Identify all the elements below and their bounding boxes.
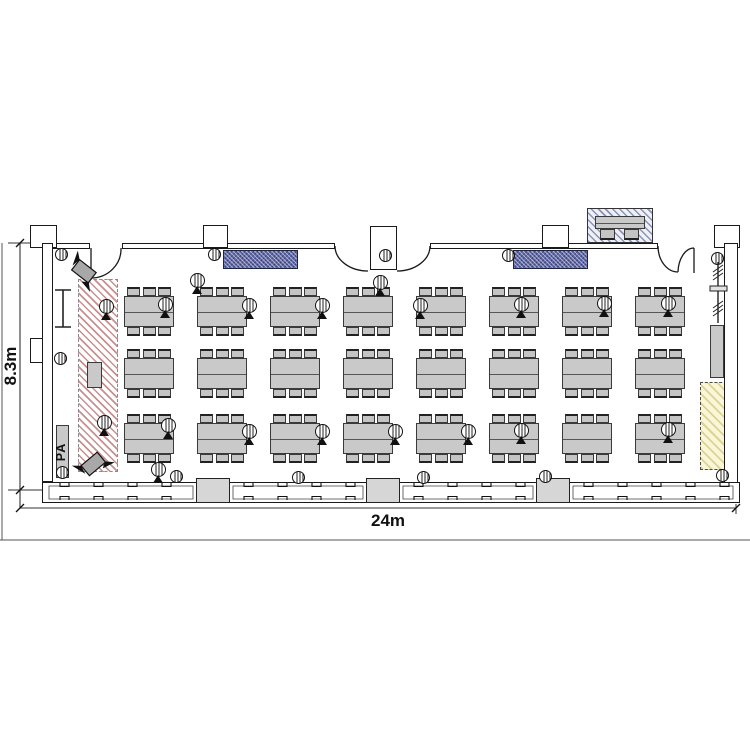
- wall-screen-right: [513, 250, 588, 269]
- chair: [346, 349, 359, 358]
- speaker-grille-icon: [502, 249, 515, 262]
- chair: [346, 287, 359, 296]
- chair: [273, 287, 286, 296]
- chair: [638, 454, 651, 463]
- wall-speaker-icon: [54, 352, 67, 365]
- table-microphone-icon: [514, 297, 529, 319]
- table-microphone-icon: [461, 424, 476, 446]
- wall-speaker-icon: [417, 471, 430, 484]
- dimension-width-label: 24m: [348, 511, 428, 531]
- microphone-stand-icon: [244, 311, 254, 319]
- chair: [492, 327, 505, 336]
- table-microphone-icon: [158, 297, 173, 319]
- chair: [596, 287, 609, 296]
- chair: [419, 287, 432, 296]
- banquet-table: [197, 296, 247, 327]
- chair: [304, 454, 317, 463]
- chair: [450, 349, 463, 358]
- chair: [216, 349, 229, 358]
- chair: [362, 454, 375, 463]
- table-microphone-icon: [242, 298, 257, 320]
- chair: [158, 389, 171, 398]
- stage-microphone-icon: [99, 299, 114, 321]
- chair: [377, 389, 390, 398]
- microphone-stand-icon: [663, 435, 673, 443]
- chair: [523, 454, 536, 463]
- microphone-stand-icon: [244, 437, 254, 445]
- chair: [143, 414, 156, 423]
- chair: [596, 389, 609, 398]
- chair: [419, 414, 432, 423]
- chair: [200, 414, 213, 423]
- wall-left-alcove: [30, 338, 43, 363]
- chair: [654, 287, 667, 296]
- chair: [289, 389, 302, 398]
- chair: [362, 349, 375, 358]
- chair: [273, 349, 286, 358]
- floor-microphone-icon: [190, 273, 205, 295]
- chair: [492, 389, 505, 398]
- microphone-stand-icon: [101, 312, 111, 320]
- chair: [304, 287, 317, 296]
- microphone-stand-icon: [390, 437, 400, 445]
- banquet-table: [197, 358, 247, 389]
- stage-lectern: [87, 362, 102, 388]
- chair: [289, 454, 302, 463]
- chair: [143, 349, 156, 358]
- chair: [669, 389, 682, 398]
- chair: [231, 349, 244, 358]
- banquet-table: [562, 358, 612, 389]
- chair: [492, 287, 505, 296]
- banquet-table: [270, 296, 320, 327]
- chair: [289, 327, 302, 336]
- floor-plan: 24m 8.3m PA: [0, 0, 750, 750]
- table-microphone-icon: [161, 418, 176, 440]
- chair: [638, 389, 651, 398]
- chair: [565, 454, 578, 463]
- chair: [450, 389, 463, 398]
- chair: [362, 327, 375, 336]
- banquet-table: [562, 423, 612, 454]
- chair: [492, 414, 505, 423]
- wall-top-segment: [122, 243, 335, 249]
- chair: [419, 349, 432, 358]
- chair: [216, 389, 229, 398]
- chair: [638, 414, 651, 423]
- chair: [508, 414, 521, 423]
- table-microphone-icon: [388, 424, 403, 446]
- chair: [523, 414, 536, 423]
- speaker-grille-icon: [711, 252, 724, 265]
- chair: [450, 287, 463, 296]
- banquet-table: [635, 358, 685, 389]
- registration-table: [595, 216, 645, 229]
- chair: [143, 287, 156, 296]
- microphone-stand-icon: [317, 437, 327, 445]
- chair: [158, 349, 171, 358]
- wall-left: [42, 243, 53, 482]
- speaker-grille-icon: [716, 469, 729, 482]
- chair: [435, 287, 448, 296]
- table-microphone-icon: [315, 298, 330, 320]
- chair: [669, 327, 682, 336]
- chair: [346, 414, 359, 423]
- chair: [289, 349, 302, 358]
- chair: [273, 454, 286, 463]
- chair: [654, 389, 667, 398]
- chair: [346, 454, 359, 463]
- microphone-stand-icon: [192, 286, 202, 294]
- chair: [158, 287, 171, 296]
- chair: [565, 327, 578, 336]
- banquet-table: [489, 358, 539, 389]
- chair: [273, 389, 286, 398]
- chair: [581, 414, 594, 423]
- chair: [346, 327, 359, 336]
- reserved-corner-area: [700, 382, 727, 470]
- microphone-stand-icon: [599, 309, 609, 317]
- chair: [565, 349, 578, 358]
- wall-speaker-icon: [502, 249, 515, 262]
- chair: [216, 327, 229, 336]
- table-microphone-icon: [597, 296, 612, 318]
- chair: [377, 327, 390, 336]
- chair: [581, 389, 594, 398]
- microphone-stand-icon: [317, 311, 327, 319]
- chair: [508, 454, 521, 463]
- chair: [523, 349, 536, 358]
- chair: [450, 454, 463, 463]
- chair: [304, 327, 317, 336]
- microphone-stand-icon: [663, 309, 673, 317]
- wall-bottom-pier: [196, 478, 230, 503]
- speaker-grille-icon: [170, 470, 183, 483]
- banquet-table: [343, 423, 393, 454]
- chair: [435, 454, 448, 463]
- chair: [127, 287, 140, 296]
- wall-screen-left: [223, 250, 298, 269]
- microphone-stand-icon: [516, 310, 526, 318]
- chair: [289, 414, 302, 423]
- banquet-table: [197, 423, 247, 454]
- speaker-grille-icon: [54, 352, 67, 365]
- chair: [654, 327, 667, 336]
- chair: [450, 327, 463, 336]
- chair: [289, 287, 302, 296]
- chair: [377, 454, 390, 463]
- chair: [231, 327, 244, 336]
- chair: [200, 389, 213, 398]
- banquet-table: [343, 358, 393, 389]
- microphone-stand-icon: [153, 475, 163, 483]
- chair: [654, 349, 667, 358]
- chair: [523, 389, 536, 398]
- chair: [200, 327, 213, 336]
- speaker-grille-icon: [208, 248, 221, 261]
- chair: [231, 414, 244, 423]
- chair: [596, 327, 609, 336]
- wall-speaker-icon: [208, 248, 221, 261]
- chair: [669, 349, 682, 358]
- chair: [273, 414, 286, 423]
- banquet-table: [124, 358, 174, 389]
- chair: [565, 389, 578, 398]
- chair: [304, 349, 317, 358]
- table-microphone-icon: [661, 296, 676, 318]
- floor-microphone-icon: [373, 275, 388, 297]
- table-microphone-icon: [514, 423, 529, 445]
- chair: [304, 389, 317, 398]
- chair: [581, 327, 594, 336]
- chair: [523, 287, 536, 296]
- banquet-table: [270, 423, 320, 454]
- chair: [419, 389, 432, 398]
- chair: [654, 454, 667, 463]
- wall-right: [724, 243, 738, 503]
- registration-chair: [600, 229, 615, 240]
- chair: [638, 349, 651, 358]
- chair: [158, 327, 171, 336]
- wall-speaker-icon: [379, 249, 392, 262]
- chair: [304, 414, 317, 423]
- chair: [508, 287, 521, 296]
- wall-speaker-icon: [55, 248, 68, 261]
- chair: [419, 454, 432, 463]
- chair: [143, 389, 156, 398]
- stage-microphone-icon: [97, 415, 112, 437]
- chair: [127, 454, 140, 463]
- banquet-table: [343, 296, 393, 327]
- chair: [362, 389, 375, 398]
- microphone-stand-icon: [415, 311, 425, 319]
- microphone-stand-icon: [99, 428, 109, 436]
- chair: [127, 327, 140, 336]
- chair: [508, 389, 521, 398]
- chair: [581, 287, 594, 296]
- chair: [435, 414, 448, 423]
- chair: [231, 454, 244, 463]
- chair: [669, 454, 682, 463]
- chair: [596, 454, 609, 463]
- microphone-stand-icon: [163, 431, 173, 439]
- chair: [450, 414, 463, 423]
- microphone-stand-icon: [375, 288, 385, 296]
- chair: [435, 389, 448, 398]
- wall-speaker-icon: [711, 252, 724, 265]
- table-microphone-icon: [315, 424, 330, 446]
- side-table-right-wall: [710, 325, 724, 378]
- chair: [127, 349, 140, 358]
- chair: [231, 389, 244, 398]
- chair: [143, 327, 156, 336]
- wall-speaker-icon: [539, 470, 552, 483]
- chair: [638, 287, 651, 296]
- chair: [216, 414, 229, 423]
- table-microphone-icon: [413, 298, 428, 320]
- chair: [273, 327, 286, 336]
- banquet-table: [416, 423, 466, 454]
- table-microphone-icon: [242, 424, 257, 446]
- chair: [200, 454, 213, 463]
- chair: [435, 349, 448, 358]
- wall-pillar: [203, 225, 228, 248]
- chair: [596, 414, 609, 423]
- chair: [492, 454, 505, 463]
- chair: [508, 327, 521, 336]
- registration-chair: [624, 229, 639, 240]
- speaker-grille-icon: [379, 249, 392, 262]
- chair: [492, 349, 505, 358]
- wall-speaker-icon: [716, 469, 729, 482]
- wall-pillar: [542, 225, 569, 248]
- wall-bottom-pier: [366, 478, 400, 503]
- chair: [127, 389, 140, 398]
- banquet-table: [270, 358, 320, 389]
- wall-speaker-icon: [292, 471, 305, 484]
- dimension-height-label: 8.3m: [1, 331, 19, 401]
- wall-speaker-icon: [170, 470, 183, 483]
- microphone-stand-icon: [463, 437, 473, 445]
- chair: [638, 327, 651, 336]
- banquet-table: [416, 358, 466, 389]
- chair: [346, 389, 359, 398]
- chair: [435, 327, 448, 336]
- chair: [200, 349, 213, 358]
- chair: [216, 454, 229, 463]
- chair: [596, 349, 609, 358]
- chair: [581, 349, 594, 358]
- speaker-grille-icon: [539, 470, 552, 483]
- chair: [377, 349, 390, 358]
- pa-desk-label: PA: [54, 422, 70, 482]
- table-microphone-icon: [661, 422, 676, 444]
- chair: [523, 327, 536, 336]
- chair: [581, 454, 594, 463]
- chair: [565, 414, 578, 423]
- chair: [216, 287, 229, 296]
- chair: [377, 414, 390, 423]
- speaker-grille-icon: [55, 248, 68, 261]
- speaker-grille-icon: [292, 471, 305, 484]
- chair: [565, 287, 578, 296]
- floor-microphone-icon: [151, 462, 166, 484]
- microphone-stand-icon: [516, 436, 526, 444]
- chair: [669, 287, 682, 296]
- chair: [362, 414, 375, 423]
- chair: [127, 414, 140, 423]
- chair: [419, 327, 432, 336]
- speaker-grille-icon: [417, 471, 430, 484]
- microphone-stand-icon: [160, 310, 170, 318]
- chair: [231, 287, 244, 296]
- chair: [508, 349, 521, 358]
